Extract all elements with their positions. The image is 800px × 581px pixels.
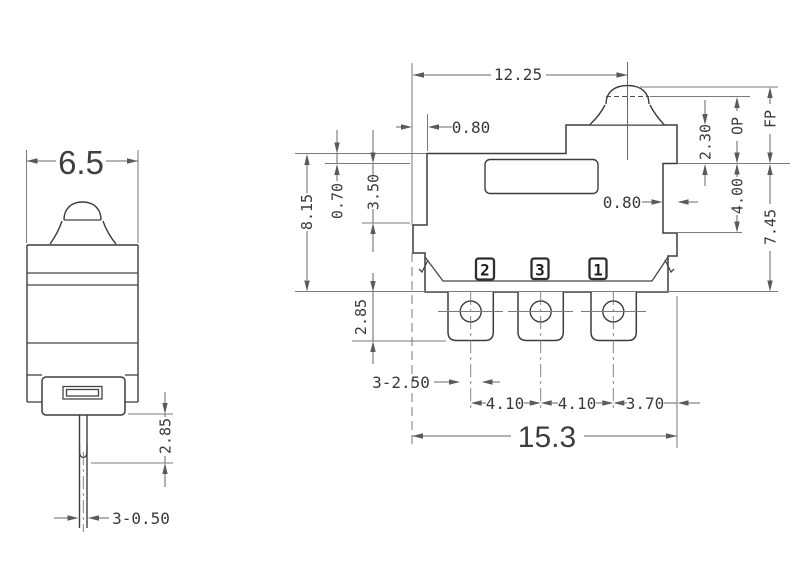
terminal-length-label: 2.85	[352, 299, 370, 335]
dim-plunger-offset: 12.25	[413, 65, 628, 84]
micro-switch-drawing-canvas: 6.5 2.85 3-0.50	[0, 0, 800, 581]
technical-drawing: 6.5 2.85 3-0.50	[0, 0, 800, 581]
terminal-number-3: 3	[535, 261, 545, 280]
terminal-edge-label: 3.70	[626, 394, 665, 413]
mount-step-label: 0.80	[452, 118, 491, 137]
dim-body-height: 8.15	[298, 154, 316, 292]
front-view	[27, 202, 138, 532]
dim-top-step: 0.70	[329, 130, 347, 219]
front-plunger-dome	[50, 202, 116, 244]
dim-free-position: FP	[762, 87, 780, 164]
side-step-height-label: 4.00	[729, 178, 747, 214]
plunger-offset-label: 12.25	[494, 65, 542, 84]
dim-upper-body: 3.50	[365, 130, 383, 252]
dim-operating-position: OP	[729, 97, 747, 164]
terminal-number-1: 1	[593, 261, 603, 280]
top-step-label: 0.70	[329, 183, 347, 219]
dim-terminal-pitch-right: 4.10	[541, 394, 614, 413]
dim-side-step-height: 4.00	[729, 164, 747, 233]
dim-terminal-holes: 3-2.50	[372, 373, 500, 392]
terminal-holes-label: 3-2.50	[372, 373, 430, 392]
terminal-number-2: 2	[480, 261, 490, 280]
dim-terminal-edge: 3.70	[613, 394, 700, 413]
side-step-width-label: 0.80	[603, 193, 642, 212]
terminal-pitch-right-label: 4.10	[558, 394, 597, 413]
dim-button-height: 2.30	[697, 100, 715, 186]
front-width-label: 6.5	[58, 144, 104, 181]
body-height-label: 8.15	[298, 194, 316, 230]
front-pin-width-label: 3-0.50	[112, 509, 170, 528]
button-height-label: 2.30	[697, 124, 715, 160]
dim-terminal-pitch-left: 4.10	[471, 394, 541, 413]
dim-terminal-length: 2.85	[352, 273, 376, 364]
total-width-label: 15.3	[518, 421, 576, 454]
dim-total-height: 7.45	[762, 164, 780, 292]
free-position-label: FP	[762, 110, 780, 128]
dim-total-width: 15.3	[412, 421, 677, 454]
operating-position-label: OP	[729, 117, 747, 135]
dim-mount-step: 0.80	[396, 118, 490, 137]
front-pin-length-label: 2.85	[157, 418, 175, 454]
total-height-label: 7.45	[762, 209, 780, 245]
upper-body-label: 3.50	[365, 174, 383, 210]
terminal-pitch-left-label: 4.10	[486, 394, 525, 413]
dim-front-pin-width: 3-0.50	[54, 509, 170, 528]
